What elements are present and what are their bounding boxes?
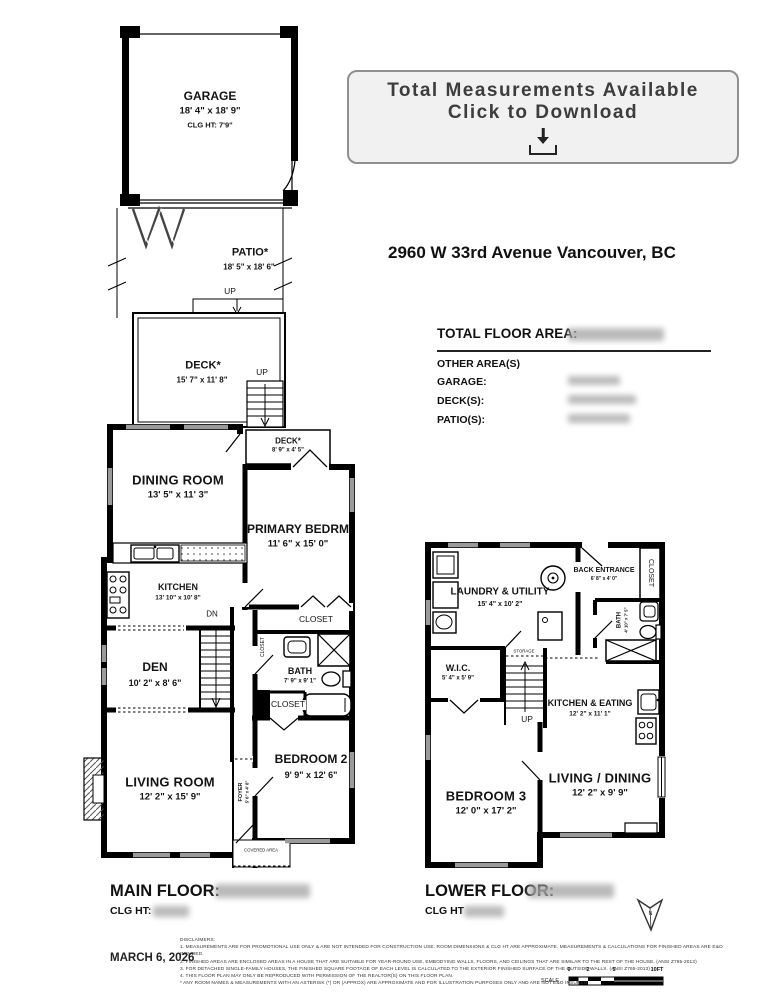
storage-label: STORAGE [513,650,536,655]
back-entrance-dims: 6' 8" x 4' 0" [591,577,618,583]
closet-primary-label: CLOSET [299,615,333,625]
banner-line2: Click to Download [448,102,638,124]
main-floor-clg-label: CLG HT: [110,905,151,917]
closet-bed2-label: CLOSET [270,700,306,710]
wic-label: W.I.C. [446,663,471,673]
kitchen-eating-label: KITCHEN & EATING [548,698,633,708]
kitchen-eating-dims: 12' 2" x 11' 1" [569,710,610,717]
covered-area-label: COVERED AREA [243,849,279,854]
patios-area-label: PATIO(S): [437,414,485,426]
disclaimer-line: 1. MEASUREMENTS ARE FOR PROMOTIONAL USE … [180,944,740,958]
bath-lower-label: BATH [617,612,624,628]
closet-hall-label: CLOSET [261,637,267,657]
decks-area-value-redacted [568,395,636,404]
laundry-utility-label: LAUNDRY & UTILITY [451,586,550,598]
download-icon [525,128,561,154]
disclaimer-line: 4. THIS FLOOR PLAN MAY ONLY BE REPRODUCE… [180,973,740,980]
disclaimer-line: * ANY ROOM NAMES & MEASUREMENTS WITH AN … [180,980,740,987]
bedroom3-label: BEDROOM 3 [446,790,527,805]
deck-label: DECK* [185,360,220,373]
total-floor-area-label: TOTAL FLOOR AREA: [437,326,578,341]
dining-room-dims: 13' 5" x 11' 3" [148,491,209,502]
summary-divider [437,350,711,352]
floor-plan-page: Total Measurements Available Click to Do… [0,0,773,1000]
scale-label: SCALE [541,978,559,984]
primary-bedroom-dims: 11' 6" x 15' 0" [268,540,329,551]
patio-label: PATIO* [232,247,268,260]
den-dims: 10' 2" x 8' 6" [129,678,182,688]
living-room-dims: 12' 2" x 15' 9" [139,793,200,804]
disclaimer-line: 2. FINISHED AREAS ARE ENCLOSED AREAS IN … [180,959,740,966]
bedroom3-dims: 12' 0" x 17' 2" [455,807,516,818]
kitchen-label: KITCHEN [158,582,198,592]
patio-dims: 18' 5" x 18' 6" [223,262,274,271]
patios-area-value-redacted [568,414,630,423]
bedroom2-dims: 9' 9" x 12' 6" [285,770,338,780]
deck-dims: 15' 7" x 11' 8" [177,375,228,384]
north-label: N [649,911,653,917]
garage-area-label: GARAGE: [437,376,487,388]
foyer-dims: 5' 6" x 4' 8" [246,781,251,804]
disclaimers-title: DISCLAIMERS: [180,937,740,944]
scale-tick-10ft: 10FT [651,967,664,973]
scale-tick-2: 2 [586,967,589,973]
other-areas-label: OTHER AREA(S) [437,358,520,370]
main-floor-area-redacted [215,884,310,898]
download-banner[interactable]: Total Measurements Available Click to Do… [347,70,739,164]
kitchen-dims: 13' 10" x 10' 8" [155,594,200,601]
main-floor-plan [84,424,355,868]
foyer-label: FOYER [238,783,244,802]
property-address: 2960 W 33rd Avenue Vancouver, BC [388,243,676,263]
primary-bedroom-label: PRIMARY BEDRM [247,523,349,537]
garage-label: GARAGE [184,90,237,104]
scale-tick-0: 0 [567,967,570,973]
bath-lower-dims: 4' 10" x 7' 5" [625,607,630,632]
back-entrance-label: BACK ENTRANCE [573,567,634,575]
living-dining-dims: 12' 2" x 9' 9" [572,789,628,800]
garage-area-value-redacted [568,376,620,385]
deck-small-dims: 8' 9" x 4' 5" [272,448,304,455]
total-area-value-redacted [568,328,664,341]
up-label-deck: UP [255,368,269,378]
scale-tick-5: 5 [612,967,615,973]
wic-dims: 5' 4" x 5' 9" [442,676,474,683]
banner-line1: Total Measurements Available [387,80,699,102]
main-floor-heading: MAIN FLOOR: [110,882,220,901]
garage-dims: 18' 4" x 18' 9" [179,107,240,118]
garage-ceiling-height: CLG HT: 7'9" [187,122,232,131]
dining-room-label: DINING ROOM [132,474,224,489]
bath-label: BATH [288,666,312,676]
garage-plan [120,26,298,246]
disclaimers-block: DISCLAIMERS: 1. MEASUREMENTS ARE FOR PRO… [180,937,740,987]
deck-small-label: DECK* [275,436,301,445]
decks-area-label: DECK(S): [437,395,484,407]
lower-floor-clg-redacted [464,906,504,917]
lower-floor-area-redacted [528,884,614,898]
den-label: DEN [142,661,167,675]
up-label-patio: UP [224,287,236,297]
bedroom2-label: BEDROOM 2 [275,753,348,767]
lower-floor-clg-label: CLG HT [425,905,464,917]
living-dining-label: LIVING / DINING [549,772,652,787]
main-floor-clg-redacted [153,906,189,917]
up-label-lower: UP [520,715,534,725]
bath-dims: 7' 9" x 9' 1" [284,679,316,686]
closet-lower-label: CLOSET [646,559,654,587]
dn-label: DN [205,609,219,618]
laundry-utility-dims: 15' 4" x 10' 2" [478,601,523,609]
living-room-label: LIVING ROOM [125,776,215,791]
